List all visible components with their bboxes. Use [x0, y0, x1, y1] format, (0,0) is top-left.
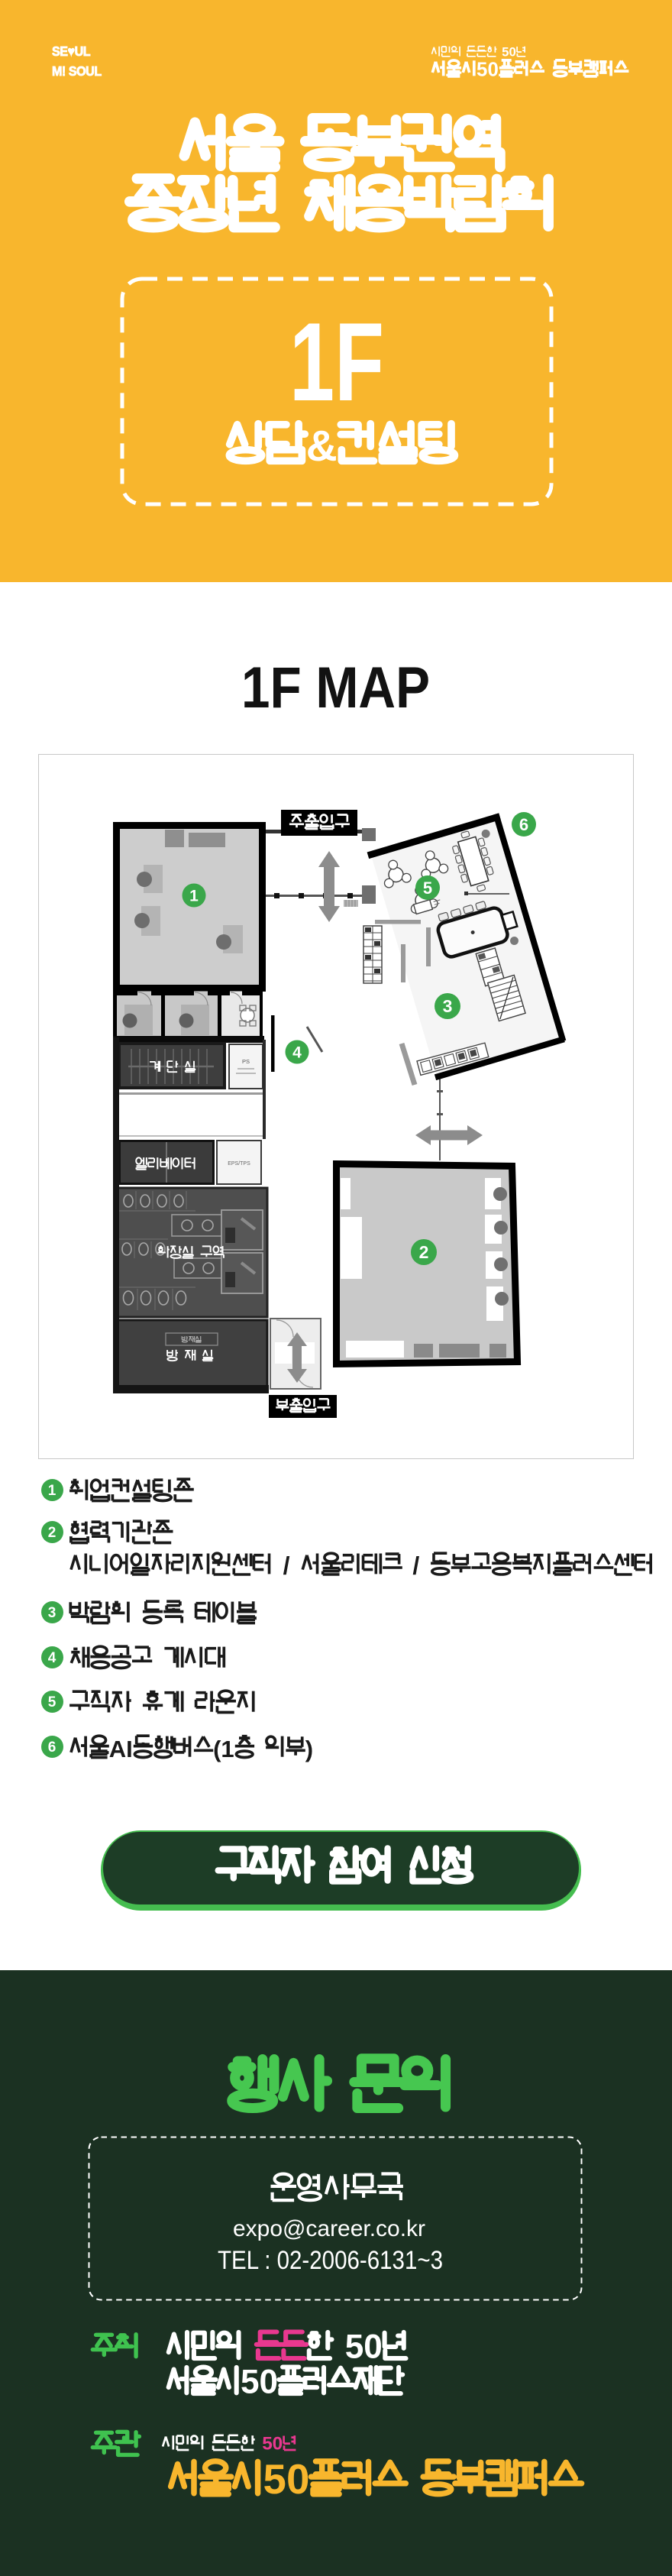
svg-text:5: 5 — [477, 59, 487, 80]
svg-text:1F: 1F — [289, 299, 384, 424]
svg-text:1: 1 — [189, 888, 199, 905]
svg-text:&: & — [306, 422, 338, 471]
svg-text:1: 1 — [48, 1483, 57, 1499]
svg-text:5: 5 — [263, 2456, 286, 2503]
svg-text:/: / — [412, 1552, 419, 1579]
svg-text:0: 0 — [273, 2433, 283, 2454]
svg-text:3: 3 — [443, 996, 453, 1016]
svg-text:5: 5 — [502, 44, 509, 59]
svg-text:A: A — [109, 1736, 126, 1762]
svg-text:TEL : 02-2006-6131~3: TEL : 02-2006-6131~3 — [218, 2246, 443, 2275]
svg-text:2: 2 — [419, 1242, 429, 1262]
svg-text:M! SOUL: M! SOUL — [52, 63, 102, 79]
svg-text:5: 5 — [423, 879, 432, 898]
svg-text:3: 3 — [48, 1605, 57, 1621]
svg-text:/: / — [283, 1552, 290, 1579]
svg-text:PS: PS — [242, 1058, 250, 1065]
svg-text:0: 0 — [363, 2328, 383, 2366]
svg-text:SE♥UL: SE♥UL — [52, 44, 90, 59]
svg-text:I: I — [126, 1736, 133, 1762]
svg-text:expo@career.co.kr: expo@career.co.kr — [233, 2216, 425, 2241]
svg-text:1: 1 — [221, 1736, 234, 1762]
svg-text:): ) — [305, 1736, 313, 1762]
svg-text:0: 0 — [488, 59, 499, 80]
svg-text:5: 5 — [262, 2433, 273, 2454]
svg-text:0: 0 — [286, 2456, 309, 2503]
svg-text:2: 2 — [48, 1525, 57, 1541]
svg-text:5: 5 — [48, 1694, 57, 1710]
svg-text:6: 6 — [519, 815, 528, 834]
svg-text:4: 4 — [292, 1044, 302, 1062]
svg-text:0: 0 — [260, 2364, 279, 2401]
svg-text:5: 5 — [241, 2364, 260, 2401]
svg-text:4: 4 — [48, 1650, 57, 1666]
svg-text:6: 6 — [48, 1739, 57, 1756]
svg-text:5: 5 — [345, 2328, 364, 2366]
svg-text:0: 0 — [509, 44, 516, 59]
svg-text:1F MAP: 1F MAP — [241, 655, 430, 720]
svg-text:EPS/TPS: EPS/TPS — [228, 1161, 250, 1167]
